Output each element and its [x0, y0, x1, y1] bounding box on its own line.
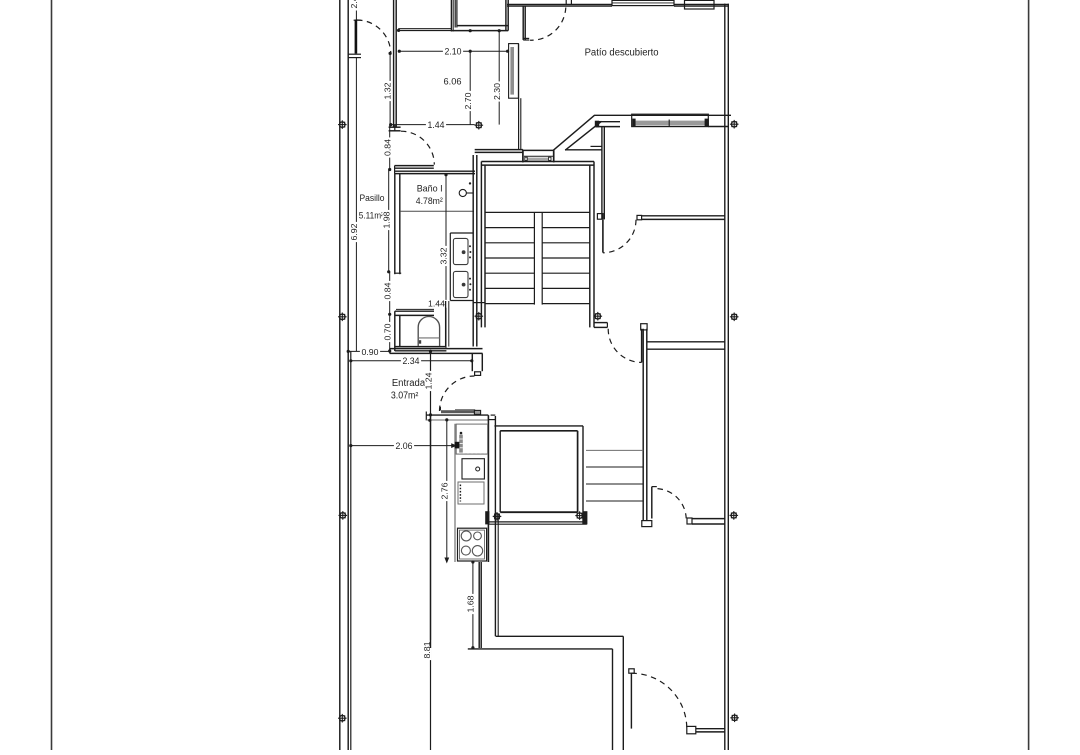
svg-text:1.24: 1.24 — [423, 372, 433, 389]
svg-text:1.44: 1.44 — [428, 120, 445, 130]
svg-text:5.11m²: 5.11m² — [359, 211, 384, 221]
svg-text:1.32: 1.32 — [383, 82, 393, 99]
svg-text:0.84: 0.84 — [382, 282, 392, 299]
svg-text:Baño I: Baño I — [417, 183, 443, 194]
svg-text:6.06: 6.06 — [444, 77, 462, 87]
svg-text:2.70: 2.70 — [463, 92, 473, 109]
svg-text:2.34: 2.34 — [403, 356, 420, 366]
svg-text:2.10: 2.10 — [445, 47, 462, 57]
svg-text:Patío descubierto: Patío descubierto — [585, 47, 659, 58]
svg-text:6.92: 6.92 — [349, 223, 359, 240]
svg-text:3.32: 3.32 — [439, 247, 449, 264]
svg-text:2.76: 2.76 — [439, 482, 449, 499]
svg-text:1.68: 1.68 — [466, 595, 476, 612]
svg-text:2.06: 2.06 — [396, 441, 413, 451]
svg-text:2.30: 2.30 — [492, 83, 502, 100]
svg-text:0.90: 0.90 — [362, 347, 379, 357]
svg-text:2.46: 2.46 — [349, 0, 359, 9]
svg-text:1.98: 1.98 — [381, 211, 391, 228]
svg-text:Pasillo: Pasillo — [360, 193, 385, 203]
svg-text:1.44: 1.44 — [428, 300, 445, 309]
svg-text:Entrada: Entrada — [392, 378, 426, 389]
svg-text:4.78m²: 4.78m² — [416, 196, 444, 207]
svg-text:0.70: 0.70 — [382, 323, 392, 340]
svg-text:0.84: 0.84 — [382, 139, 392, 156]
svg-text:3.07m²: 3.07m² — [391, 390, 419, 401]
